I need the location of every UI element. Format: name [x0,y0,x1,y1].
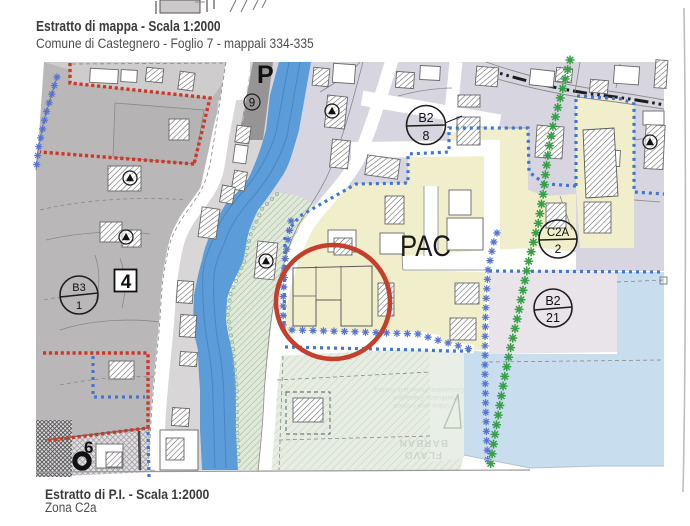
svg-text:PAC: PAC [400,230,451,263]
svg-text:BARBAN: BARBAN [399,437,448,448]
svg-text:8: 8 [423,129,430,143]
svg-text:Conservatori Provincia di Vice: Conservatori Provincia di Vicenza [374,386,464,392]
svg-text:Pianificatori, Paesaggisti: Pianificatori, Paesaggisti [393,394,458,400]
svg-text:B3: B3 [72,282,85,294]
svg-text:B2: B2 [418,111,433,125]
svg-text:1: 1 [76,300,82,312]
svg-text:4: 4 [121,272,132,293]
svg-text:2: 2 [555,242,562,256]
svg-text:P: P [257,61,274,89]
svg-text:9: 9 [249,98,255,110]
svg-text:21: 21 [546,311,560,325]
svg-text:Ordine degli Architetti: Ordine degli Architetti [393,402,450,408]
svg-text:B2: B2 [545,294,560,308]
svg-text:C2A: C2A [547,227,570,239]
svg-text:FLAVO: FLAVO [404,449,442,460]
